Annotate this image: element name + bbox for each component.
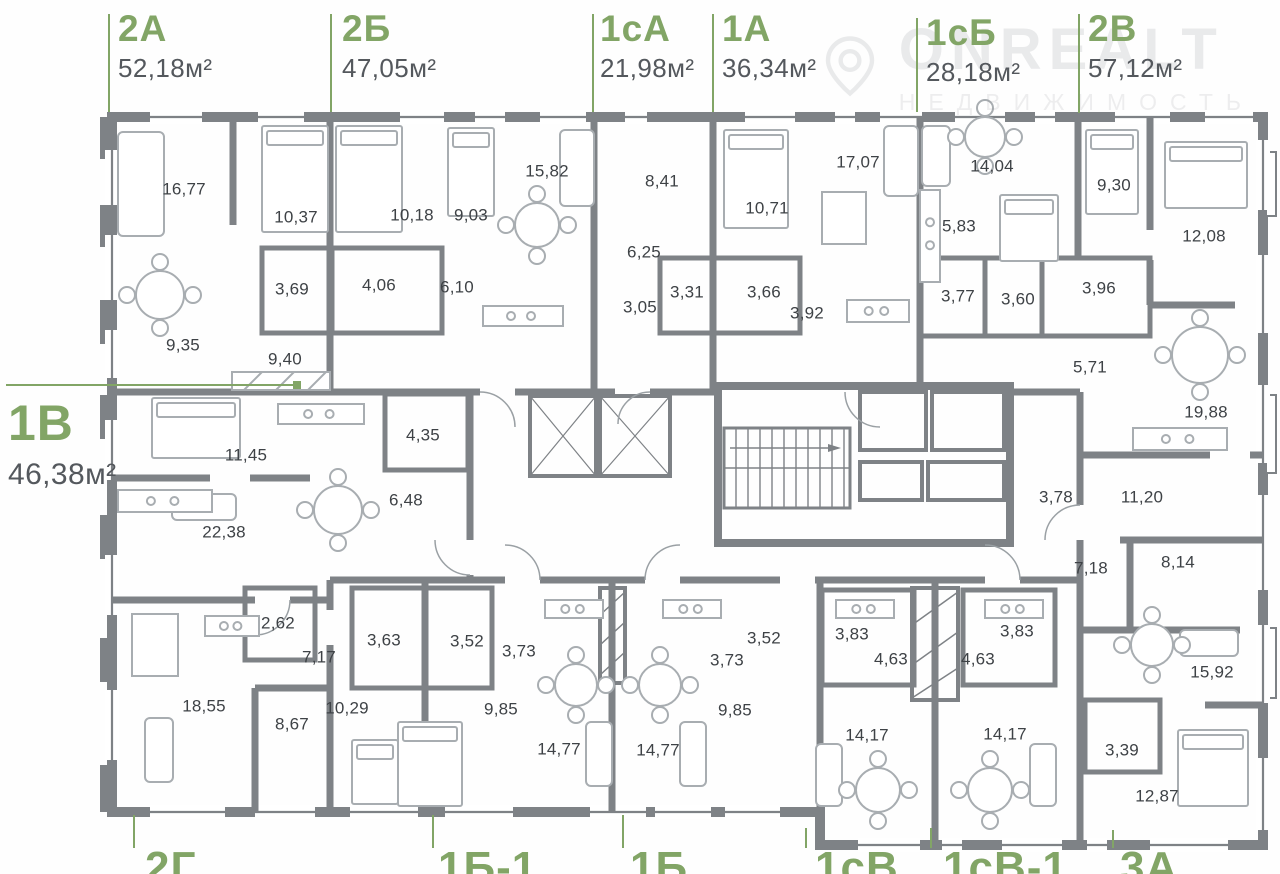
kitchen-counter — [985, 600, 1043, 618]
sofa — [1030, 744, 1056, 806]
callout-line — [133, 815, 135, 848]
sofa — [816, 744, 842, 806]
bed — [1086, 130, 1138, 214]
stair-core — [718, 386, 1010, 543]
kitchen-counter — [205, 616, 259, 636]
storage-rooms — [530, 396, 670, 476]
apartment-id: 1А — [722, 10, 816, 47]
apartment-area: 47,05м² — [342, 55, 436, 81]
room-area-label: 19,88 — [1184, 402, 1228, 421]
apartment-callout-1sb: 1сБ 28,18м² — [926, 14, 1020, 85]
kitchen-counter — [920, 190, 940, 282]
room-area-label: 6,48 — [389, 490, 423, 509]
kitchen-counter — [663, 600, 721, 618]
room-area-label: 9,85 — [718, 700, 752, 719]
room-area-label: 3,66 — [747, 282, 781, 301]
apartment-id: 1Б-1 — [438, 846, 537, 874]
desk — [132, 614, 178, 676]
bed — [352, 740, 398, 804]
room-area-label: 9,35 — [166, 335, 200, 354]
room-area-label: 3,31 — [670, 282, 704, 301]
apartment-callout-2b: 2Б 47,05м² — [342, 10, 436, 81]
floor-plan-page: 16,7710,373,694,069,359,4015,8210,189,03… — [0, 0, 1280, 874]
dining-table — [622, 647, 698, 723]
callout-line — [930, 828, 932, 848]
apartment-id: 1сБ — [926, 14, 1020, 51]
bed — [448, 128, 494, 216]
kitchen-counter — [483, 306, 563, 326]
callout-line — [108, 14, 110, 112]
room-area-label: 3,63 — [367, 630, 401, 649]
kitchen-counter — [545, 600, 603, 618]
sofa — [145, 718, 173, 782]
apartment-area: 52,18м² — [118, 55, 212, 81]
wardrobe — [232, 372, 330, 390]
apartment-id: 2Б — [342, 10, 436, 47]
apartment-callout-2a: 2А 52,18м² — [118, 10, 212, 81]
room-area-label: 5,83 — [942, 216, 976, 235]
kitchen-counter — [278, 404, 364, 424]
room-area-label: 12,87 — [1135, 786, 1179, 805]
room-area-label: 9,30 — [1097, 175, 1131, 194]
room-area-label: 10,71 — [745, 198, 789, 217]
room-area-label: 3,05 — [623, 297, 657, 316]
apartment-area: 28,18м² — [926, 59, 1020, 85]
room-area-label: 3,39 — [1105, 740, 1139, 759]
room-area-label: 15,82 — [525, 161, 569, 180]
room-area-label: 9,85 — [484, 699, 518, 718]
apartment-id: 1В — [8, 398, 117, 448]
room-area-label: 18,55 — [182, 696, 226, 715]
sofa — [118, 132, 164, 236]
apartment-id: 1Б — [630, 846, 688, 874]
apartment-callout-1sv-1: 1сВ-1 — [943, 846, 1068, 874]
room-area-label: 3,52 — [747, 628, 781, 647]
room-area-label: 15,92 — [1190, 662, 1234, 681]
callout-line — [916, 18, 918, 112]
room-area-label: 3,73 — [710, 650, 744, 669]
room-area-label: 14,17 — [983, 724, 1027, 743]
room-area-label: 3,83 — [835, 624, 869, 643]
room-area-label: 14,77 — [537, 739, 581, 758]
room-area-label: 11,45 — [225, 445, 267, 464]
room-area-label: 3,78 — [1039, 487, 1073, 506]
apartment-id: 2Г — [145, 846, 196, 874]
apartment-area: 21,98м² — [600, 55, 694, 81]
room-area-label: 11,20 — [1121, 487, 1163, 506]
room-area-label: 6,10 — [440, 277, 474, 296]
kitchen-counter — [1133, 428, 1227, 450]
room-area-label: 3,77 — [941, 286, 975, 305]
apartment-callout-1sa: 1сА 21,98м² — [600, 10, 694, 81]
room-area-label: 3,73 — [502, 641, 536, 660]
room-area-label: 10,18 — [390, 205, 434, 224]
room-area-label: 6,25 — [627, 242, 661, 261]
room-area-label: 3,96 — [1082, 278, 1116, 297]
room-area-label: 3,83 — [1000, 621, 1034, 640]
callout-line — [1078, 14, 1080, 113]
room-area-label: 9,03 — [454, 205, 488, 224]
dining-table — [538, 647, 614, 723]
room-area-label: 3,69 — [275, 279, 309, 298]
apartment-id: 3А — [1120, 846, 1178, 874]
bathroom-walls — [245, 248, 1160, 772]
room-area-label: 4,63 — [874, 649, 908, 668]
room-area-label: 10,29 — [325, 698, 369, 717]
room-area-label: 2,62 — [261, 613, 295, 632]
room-area-label: 8,14 — [1161, 552, 1195, 571]
dining-table — [951, 751, 1029, 829]
kitchen-counter — [118, 490, 212, 512]
callout-line — [330, 14, 332, 112]
sofa — [884, 126, 918, 196]
apartment-callout-1b: 1Б — [630, 846, 688, 874]
apartment-id: 1сВ — [815, 846, 899, 874]
bed — [398, 722, 462, 806]
bed — [1178, 730, 1248, 806]
room-area-label: 14,04 — [970, 156, 1014, 175]
callout-line — [712, 14, 714, 112]
callout-line — [432, 815, 434, 848]
apartment-id: 1сА — [600, 10, 694, 47]
room-area-label: 3,92 — [790, 303, 824, 322]
room-area-label: 14,77 — [636, 740, 680, 759]
room-area-label: 7,17 — [302, 647, 336, 666]
room-area-label: 4,35 — [406, 425, 440, 444]
dining-table — [1114, 607, 1190, 683]
callout-line — [6, 384, 298, 386]
apartment-callout-1a: 1А 36,34м² — [722, 10, 816, 81]
apartment-id: 2В — [1088, 10, 1182, 47]
callout-line — [622, 815, 624, 848]
apartment-area: 57,12м² — [1088, 55, 1182, 81]
sofa — [680, 722, 706, 786]
floor-plan-drawing: 16,7710,373,694,069,359,4015,8210,189,03… — [0, 0, 1280, 874]
room-area-label: 16,77 — [162, 179, 206, 198]
apartment-id: 2А — [118, 10, 212, 47]
callout-line — [592, 14, 594, 112]
room-area-label: 22,38 — [202, 522, 246, 541]
room-area-label: 10,37 — [274, 207, 318, 226]
room-area-label: 5,71 — [1073, 357, 1107, 376]
room-area-label: 14,17 — [845, 725, 889, 744]
room-area-label: 4,06 — [362, 275, 396, 294]
dining-table — [839, 751, 917, 829]
apartment-area: 36,34м² — [722, 55, 816, 81]
apartment-callout-2v: 2В 57,12м² — [1088, 10, 1182, 81]
callout-line — [805, 828, 807, 848]
room-area-label: 8,67 — [275, 714, 309, 733]
kitchen-counter — [836, 600, 894, 618]
room-area-label: 9,40 — [268, 349, 302, 368]
room-area-label: 8,41 — [645, 171, 679, 190]
callout-line — [1112, 830, 1114, 848]
room-area-label: 4,63 — [961, 649, 995, 668]
room-area-label: 7,18 — [1074, 558, 1108, 577]
room-area-label: 17,07 — [836, 152, 880, 171]
apartment-area: 46,38м² — [8, 460, 117, 490]
kitchen-counter — [847, 300, 909, 322]
sofa — [586, 722, 612, 786]
room-area-label: 3,60 — [1001, 289, 1035, 308]
bed — [1165, 142, 1247, 208]
room-area-label: 3,52 — [450, 631, 484, 650]
room-area-label: 12,08 — [1182, 226, 1226, 245]
apartment-callout-1sv: 1сВ — [815, 846, 899, 874]
apartment-callout-2g: 2Г — [145, 846, 196, 874]
apartment-callout-1b-1: 1Б-1 — [438, 846, 537, 874]
sofa — [922, 126, 950, 186]
dining-table — [119, 254, 201, 336]
apartment-callout-1v: 1В 46,38м² — [8, 398, 117, 490]
bed — [1000, 195, 1058, 261]
dining-table — [1155, 310, 1245, 400]
apartment-id: 1сВ-1 — [943, 846, 1068, 874]
desk — [822, 192, 866, 244]
apartment-callout-3a: 3А — [1120, 846, 1178, 874]
